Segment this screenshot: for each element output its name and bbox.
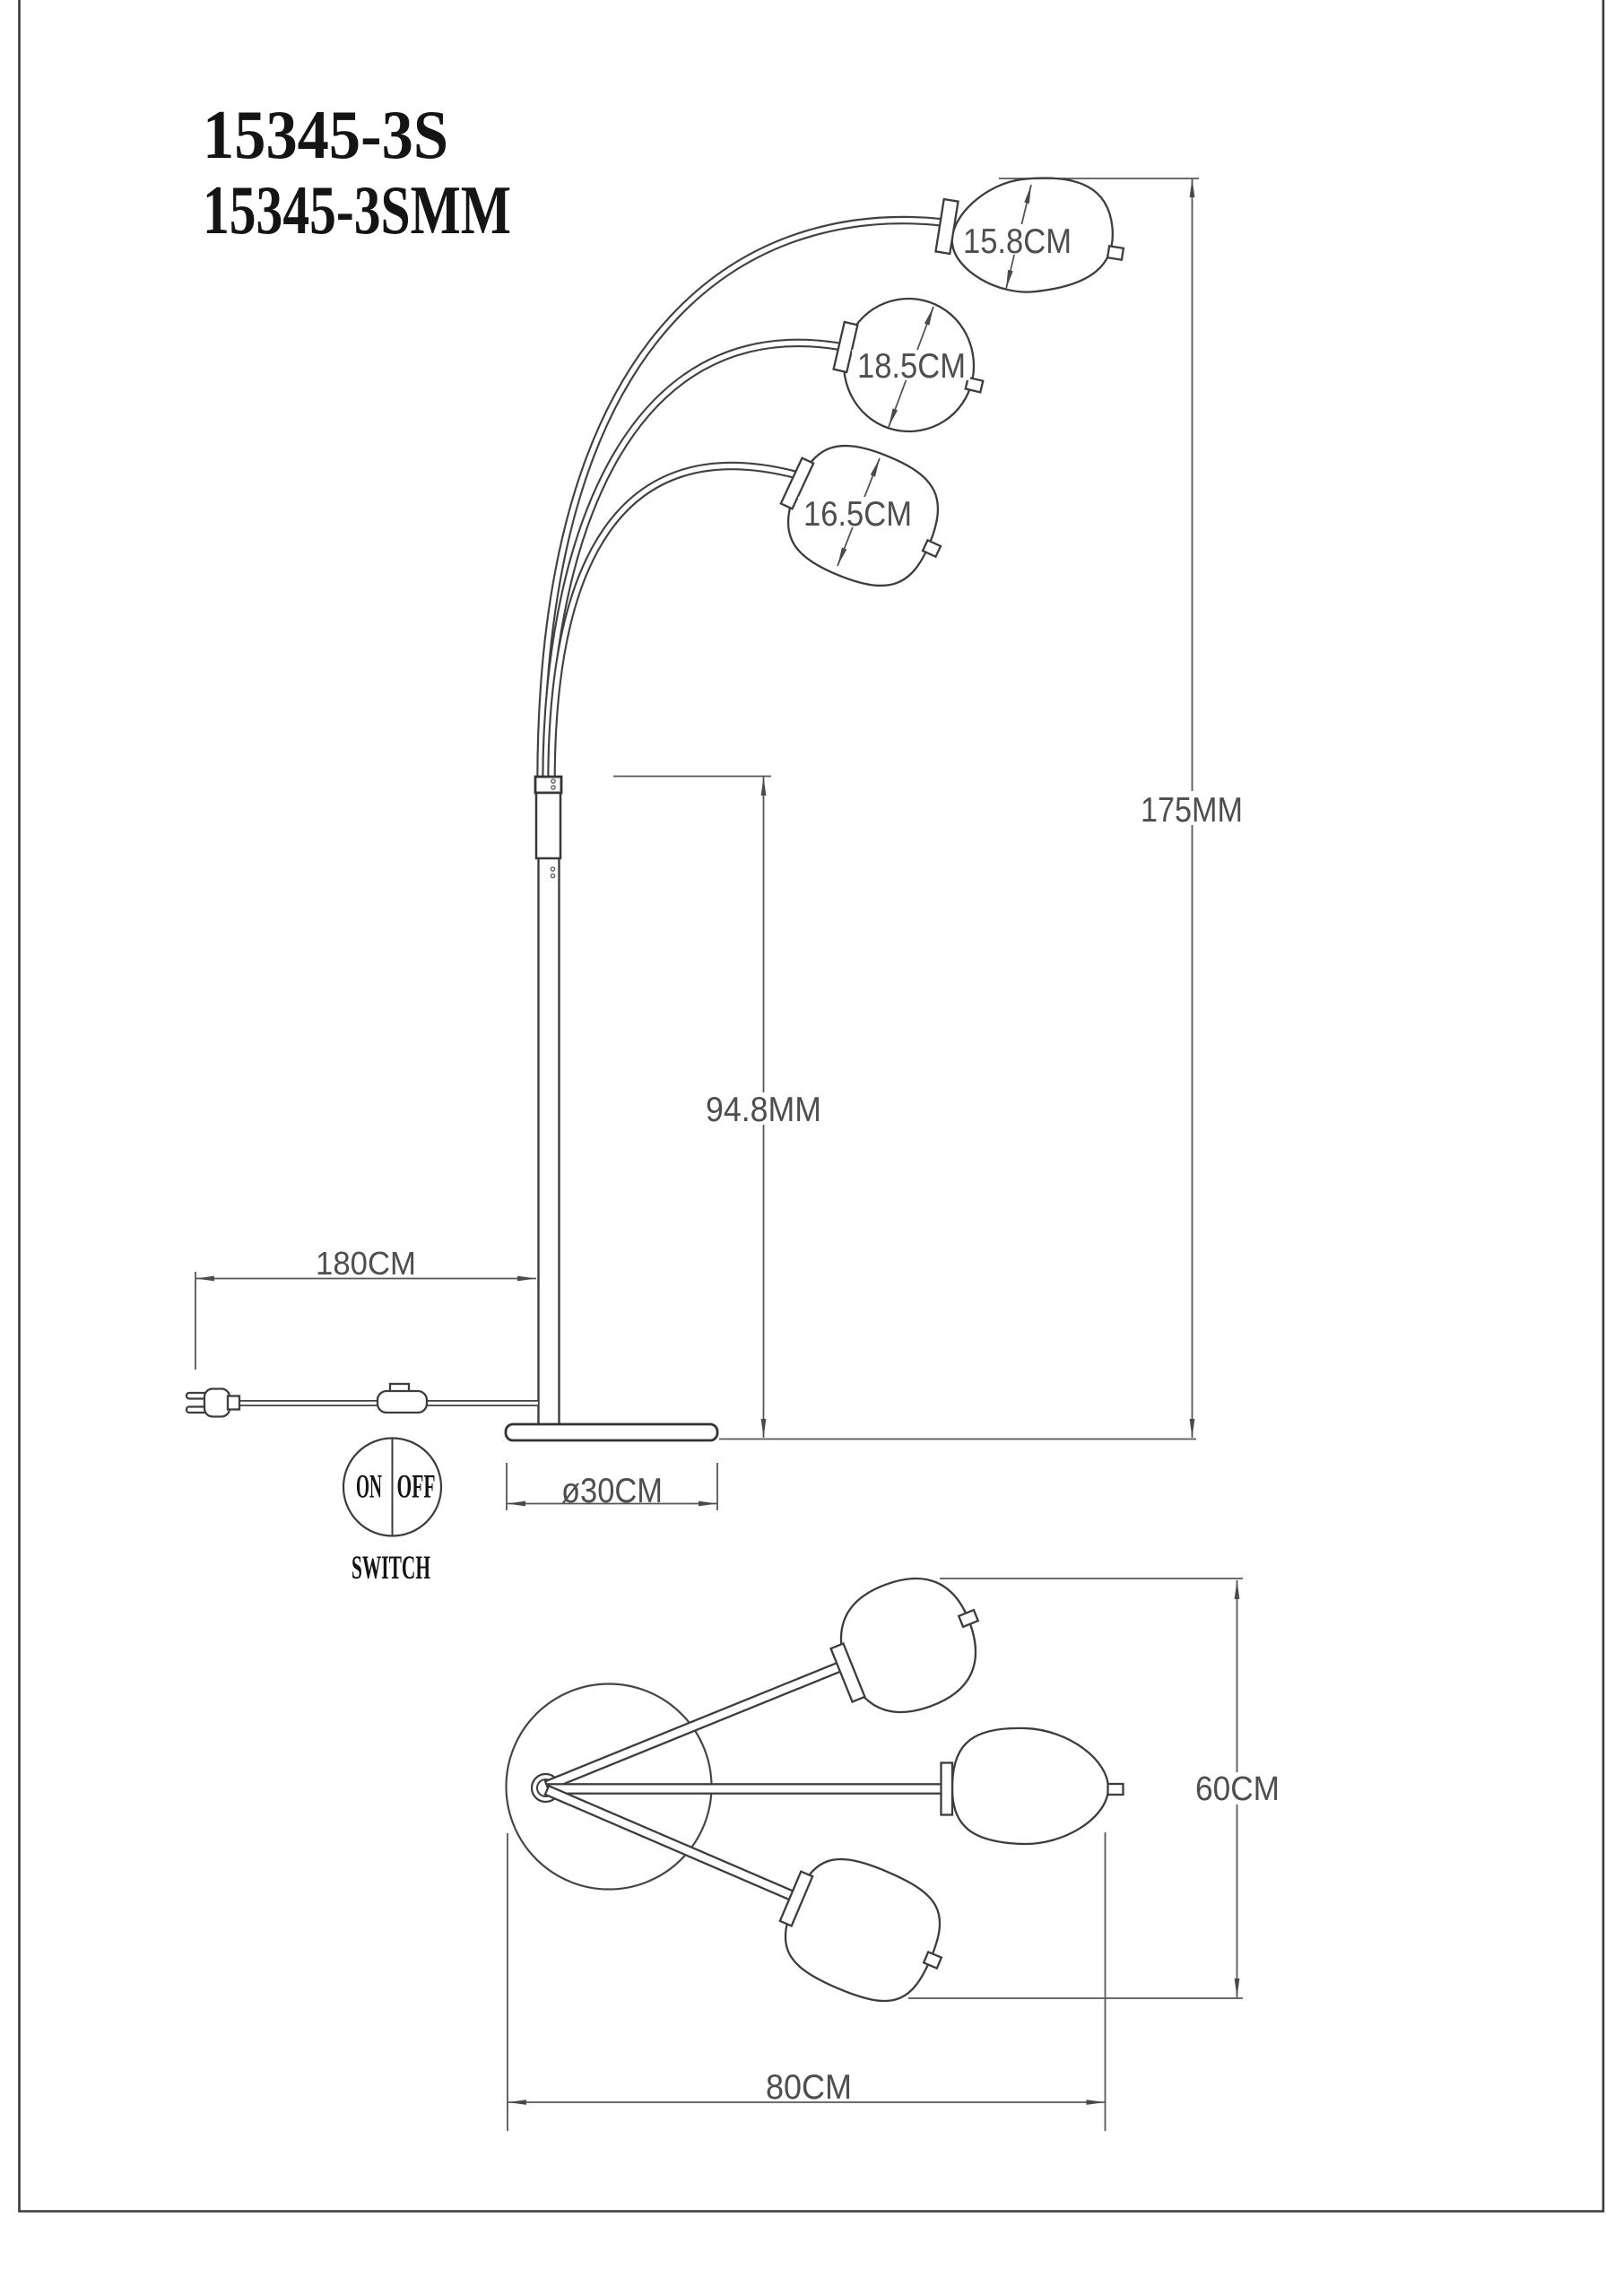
svg-text:15345-3SMM: 15345-3SMM: [203, 171, 511, 248]
svg-text:SWITCH: SWITCH: [352, 1550, 430, 1587]
svg-text:OFF: OFF: [397, 1469, 436, 1506]
svg-text:15.8CM: 15.8CM: [963, 222, 1072, 261]
svg-text:175MM: 175MM: [1141, 791, 1243, 830]
svg-text:80CM: 80CM: [766, 2068, 852, 2107]
svg-text:180CM: 180CM: [316, 1245, 416, 1282]
svg-text:ON: ON: [356, 1469, 382, 1506]
svg-text:18.5CM: 18.5CM: [857, 347, 966, 386]
svg-text:15345-3S: 15345-3S: [203, 96, 448, 173]
svg-text:94.8MM: 94.8MM: [706, 1091, 821, 1129]
svg-text:ø30CM: ø30CM: [561, 1472, 663, 1510]
svg-text:16.5CM: 16.5CM: [803, 495, 912, 534]
svg-text:60CM: 60CM: [1195, 1770, 1280, 1808]
